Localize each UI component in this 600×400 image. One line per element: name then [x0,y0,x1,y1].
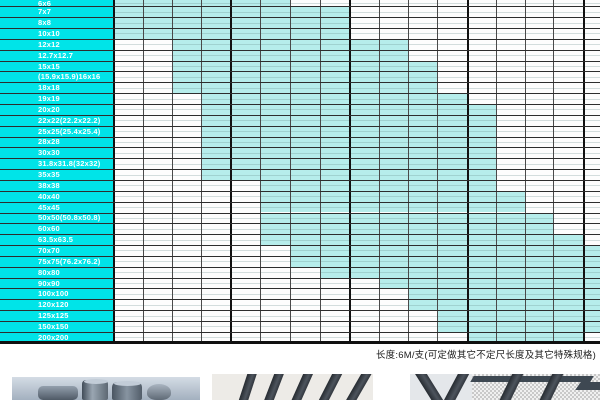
grid-midline [113,175,600,176]
row-label: 28x28 [0,137,113,148]
grid-midline [113,261,600,262]
grid-vline [379,0,380,343]
grid-midline [113,109,600,110]
row-label: 150x150 [0,321,113,332]
row-label: 38x38 [0,180,113,191]
grid-midline [113,99,600,100]
grid-hline [0,93,600,94]
bar-shape [287,374,314,400]
grid-hline [0,61,600,62]
row-label: 40x40 [0,191,113,202]
grid-midline [113,142,600,143]
grid-hline [0,71,600,72]
grid-midline [113,196,600,197]
row-label: 31.8x31.8(32x32) [0,158,113,169]
grid-midline [113,207,600,208]
grid-hline [0,202,600,203]
grid-hline [0,256,600,257]
grid-vline [290,0,291,343]
size-availability-table: 6x67x78x810x1012x1212.7x12.715x15(15.9x1… [0,0,600,343]
bar-shape [575,382,600,390]
grid-hline [0,17,600,18]
grid-hline [0,299,600,300]
grid-hline [0,223,600,224]
grid-hline [0,126,600,127]
grid-hline [0,310,600,311]
row-label: 125x125 [0,310,113,321]
grid-hline [0,82,600,83]
row-label: 63.5x63.5 [0,234,113,245]
row-label: 30x30 [0,147,113,158]
grid-vline [230,0,232,343]
row-label: 35x35 [0,169,113,180]
photo-flat-bars-fanned [212,374,373,400]
grid-midline [113,77,600,78]
grid-midline [113,283,600,284]
grid-vline [349,0,351,343]
bar-shape [440,374,469,400]
grid-midline [113,44,600,45]
row-label: 75x75(76.2x76.2) [0,256,113,267]
grid-midline [113,120,600,121]
row-label: 80x80 [0,267,113,278]
grid-vline [143,0,144,343]
grid-midline [113,88,600,89]
grid-hline [0,50,600,51]
photo-square-bars-angled [410,374,600,400]
row-label: 45x45 [0,202,113,213]
grid-hline [0,213,600,214]
grid-hline [0,28,600,29]
bar-shape [235,374,258,400]
grid-midline [113,12,600,13]
grid-midline [113,55,600,56]
row-label: 19x19 [0,93,113,104]
row-label: 25x25(25.4x25.4) [0,126,113,137]
grid-vline [113,0,115,343]
grid-midline [113,337,600,338]
bar-shape [260,374,285,400]
row-label: 120x120 [0,299,113,310]
grid-hline [0,180,600,181]
row-label: 70x70 [0,245,113,256]
row-label: 12.7x12.7 [0,50,113,61]
grid-hline [0,267,600,268]
grid-vline [583,0,585,343]
grid-hline [0,278,600,279]
row-label: 22x22(22.2x22.2) [0,115,113,126]
grid-midline [113,305,600,306]
grid-vline [172,0,173,343]
bar-shape [341,374,372,400]
length-note: 长度:6M/支(可定做其它不定尺长度及其它特殊规格) [356,347,596,361]
row-label: 50x50(50.8x50.8) [0,213,113,224]
grid-midline [113,164,600,165]
grid-midline [113,326,600,327]
grid-hline [0,245,600,246]
grid-hline [0,39,600,40]
grid-hline [0,104,600,105]
grid-midline [113,250,600,251]
grid-midline [113,185,600,186]
grid-midline [113,240,600,241]
billet-shape [147,384,171,400]
grid-midline [113,229,600,230]
grid-vline [320,0,321,343]
grid-midline [113,153,600,154]
grid-hline [0,6,600,7]
grid-hline [0,234,600,235]
row-label: 18x18 [0,82,113,93]
grid-vline [201,0,202,343]
bar-shape [415,374,447,400]
grid-hline [0,115,600,116]
grid-vline [496,0,497,343]
row-label: 10x10 [0,28,113,39]
row-label: 100x100 [0,288,113,299]
billet-top-highlight [114,381,141,386]
grid-midline [113,218,600,219]
grid-midline [113,23,600,24]
billet-shape [38,386,78,400]
billet-top-highlight [84,379,108,384]
row-label: 20x20 [0,104,113,115]
row-label: 15x15 [0,61,113,72]
grid-midline [113,66,600,67]
grid-hline [0,288,600,289]
bar-shape [314,374,343,400]
row-label: 12x12 [0,39,113,50]
row-label: 90x90 [0,278,113,289]
grid-midline [113,294,600,295]
row-label: 7x7 [0,6,113,17]
bar-shape [470,376,593,382]
grid-hline [0,147,600,148]
grid-hline [0,137,600,138]
grid-vline [408,0,409,343]
grid-vline [260,0,261,343]
row-label: (15.9x15.9)16x16 [0,71,113,82]
grid-vline [525,0,526,343]
grid-hline [0,332,600,333]
row-label: 60x60 [0,223,113,234]
grid-midline [113,316,600,317]
grid-midline [113,272,600,273]
table-bottom-border [0,341,600,344]
grid-vline [437,0,438,343]
grid-vline [553,0,554,343]
grid-midline [113,33,600,34]
grid-hline [0,169,600,170]
grid-vline [467,0,469,343]
grid-midline [113,3,600,4]
grid-hline [0,191,600,192]
grid-hline [0,158,600,159]
row-label: 8x8 [0,17,113,28]
grid-midline [113,131,600,132]
photo-steel-round-billets [12,377,200,400]
grid-hline [0,321,600,322]
